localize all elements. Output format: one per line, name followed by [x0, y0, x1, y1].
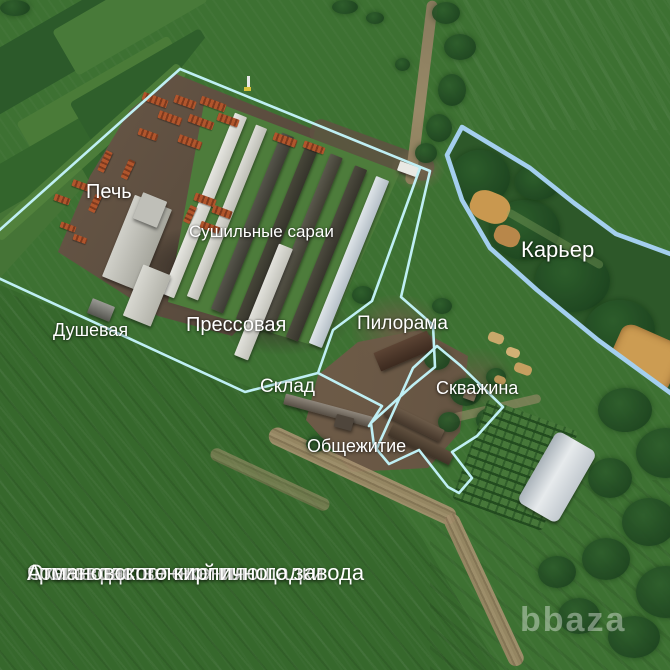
map-label-pech: Печь — [86, 181, 132, 204]
brick-stack — [141, 92, 168, 108]
brick-stack — [199, 96, 226, 112]
map-label-karier: Карьер — [521, 237, 594, 263]
satellite-map: Печь Сушильные сараи Душевая Прессовая П… — [0, 0, 670, 670]
brick-stack — [121, 159, 136, 180]
brick-stack — [137, 128, 158, 141]
brick-stack — [216, 112, 239, 127]
map-label-pressovaya: Прессовая — [186, 314, 286, 337]
brick-stack — [302, 140, 325, 154]
brick-stack — [211, 205, 233, 219]
caption-line-3: Атмановского кирпичного завода — [27, 556, 364, 589]
map-label-sushilnye: Сушильные сараи — [189, 222, 334, 242]
map-label-pilorama: Пилорама — [357, 313, 448, 335]
brick-stack — [97, 150, 113, 173]
brick-stack — [59, 221, 76, 232]
brick-stack — [173, 94, 196, 109]
map-label-skvazhina: Скважина — [436, 378, 518, 399]
watermark-bbaza: bbaza — [520, 601, 626, 640]
brick-stack — [272, 132, 297, 148]
brick-stack — [187, 114, 214, 130]
brick-stack — [53, 193, 70, 205]
map-label-sklad: Склад — [260, 376, 315, 398]
brick-stack — [177, 134, 202, 150]
map-label-obshchezhitie: Общежитие — [307, 436, 406, 457]
brick-stack — [157, 110, 182, 126]
map-label-dushevaya: Душевая — [53, 320, 128, 341]
brick-stack — [72, 234, 87, 244]
